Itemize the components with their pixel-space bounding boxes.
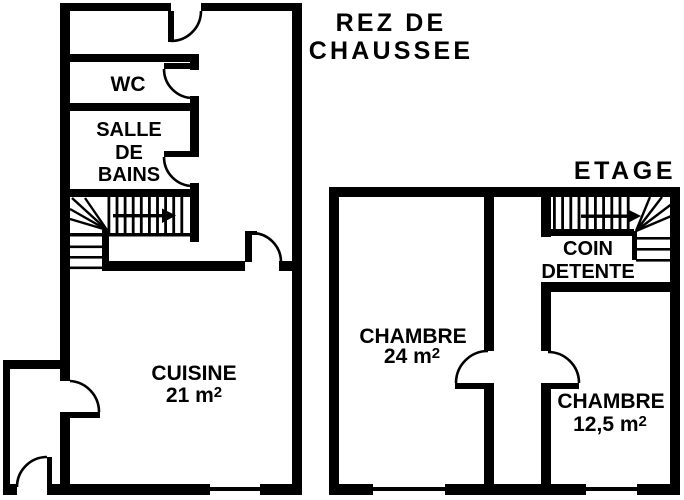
- svg-text:CUISINE: CUISINE: [151, 362, 236, 385]
- svg-text:BAINS: BAINS: [98, 164, 160, 186]
- svg-text:SALLE: SALLE: [96, 119, 162, 141]
- svg-text:COIN: COIN: [563, 238, 613, 260]
- svg-text:WC: WC: [111, 73, 146, 96]
- svg-text:REZ DE: REZ DE: [336, 9, 447, 37]
- svg-text:21 m2: 21 m2: [166, 384, 222, 407]
- svg-text:CHAUSSEE: CHAUSSEE: [309, 37, 474, 65]
- svg-text:DETENTE: DETENTE: [541, 261, 634, 283]
- svg-text:12,5 m2: 12,5 m2: [573, 413, 647, 436]
- svg-text:ETAGE: ETAGE: [574, 157, 676, 185]
- svg-text:DE: DE: [115, 142, 143, 164]
- svg-text:CHAMBRE: CHAMBRE: [557, 390, 664, 413]
- svg-text:24 m2: 24 m2: [384, 345, 440, 368]
